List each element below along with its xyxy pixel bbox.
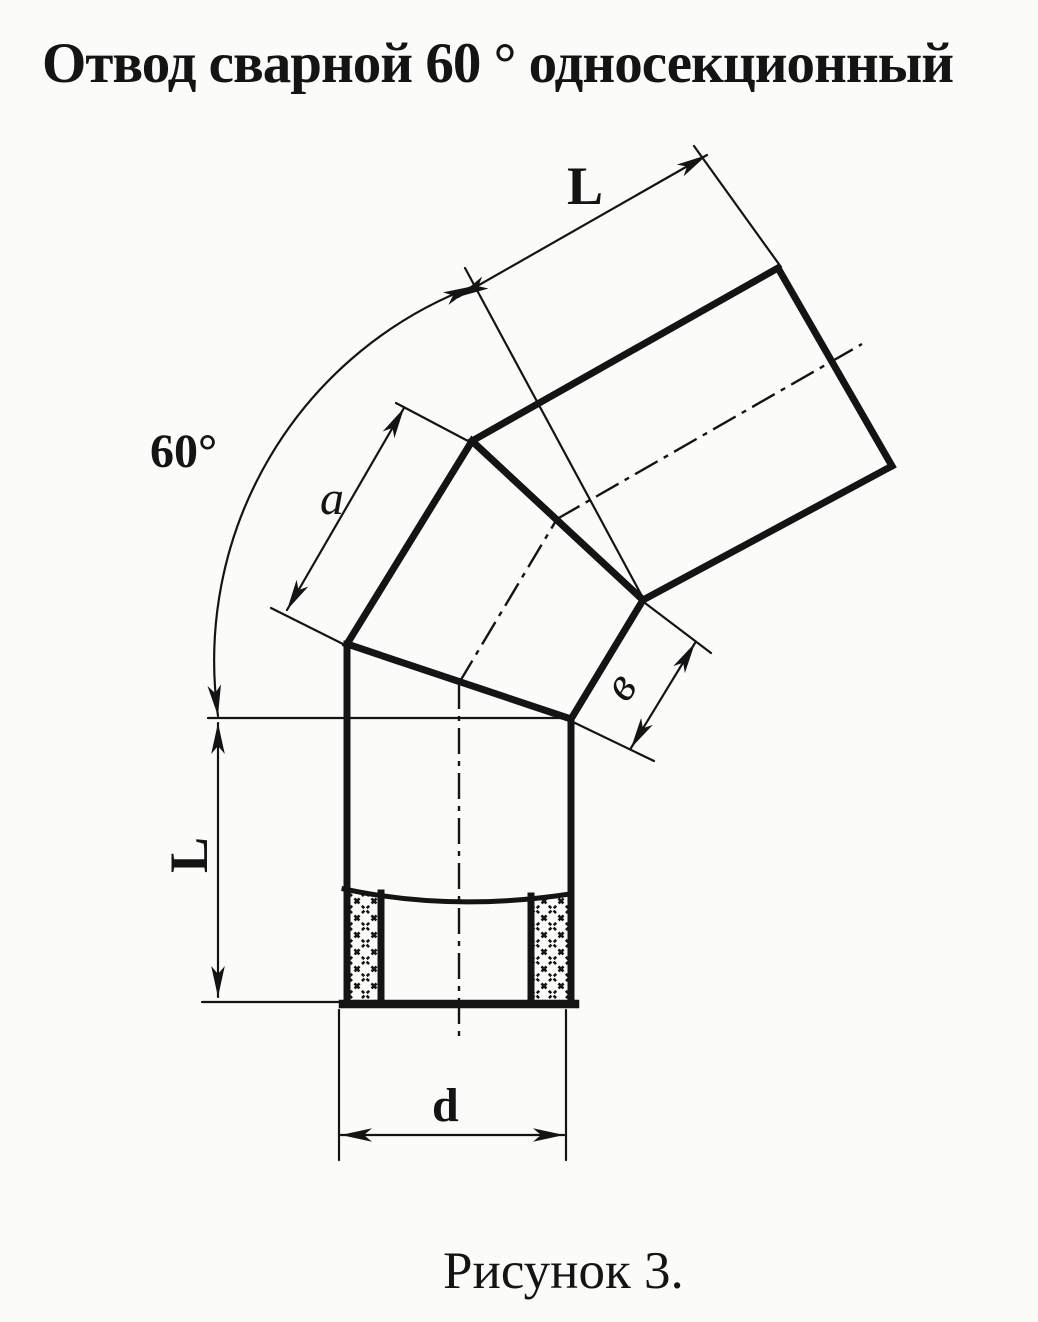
angle-dim-label: 60° bbox=[150, 425, 217, 478]
arrowhead-icon bbox=[281, 580, 308, 614]
dim-v-ext-upper bbox=[645, 603, 711, 653]
dim-a-ext-upper bbox=[396, 403, 468, 441]
diameter-dim-label: d bbox=[432, 1079, 459, 1132]
arrowhead-icon bbox=[383, 405, 410, 439]
arrowhead-icon bbox=[625, 718, 653, 752]
bottom-length-dim-label: L bbox=[159, 837, 219, 873]
top-length-dim-label: L bbox=[567, 156, 603, 216]
arrowhead-icon bbox=[673, 639, 701, 673]
figure-caption: Рисунок 3. bbox=[443, 1242, 684, 1300]
technical-drawing: Отвод сварной 60 ° односекционный Рисуно… bbox=[0, 0, 1038, 1317]
scanned-figure-page: Отвод сварной 60 ° односекционный Рисуно… bbox=[0, 0, 1038, 1317]
dim-a-label: a bbox=[320, 472, 344, 525]
centerline-middle-section bbox=[459, 519, 557, 683]
dim-L-top-ext-right bbox=[694, 146, 781, 267]
dim-v-label: в bbox=[592, 663, 647, 710]
dimension-arrowheads bbox=[207, 149, 710, 1142]
dim-a-ext-lower bbox=[271, 608, 345, 645]
pipe-top-section bbox=[472, 268, 892, 600]
weld-socket-hatch-left bbox=[350, 893, 378, 1001]
page-title: Отвод сварной 60 ° односекционный bbox=[42, 32, 953, 95]
weld-socket-hatch-right bbox=[534, 897, 568, 1001]
